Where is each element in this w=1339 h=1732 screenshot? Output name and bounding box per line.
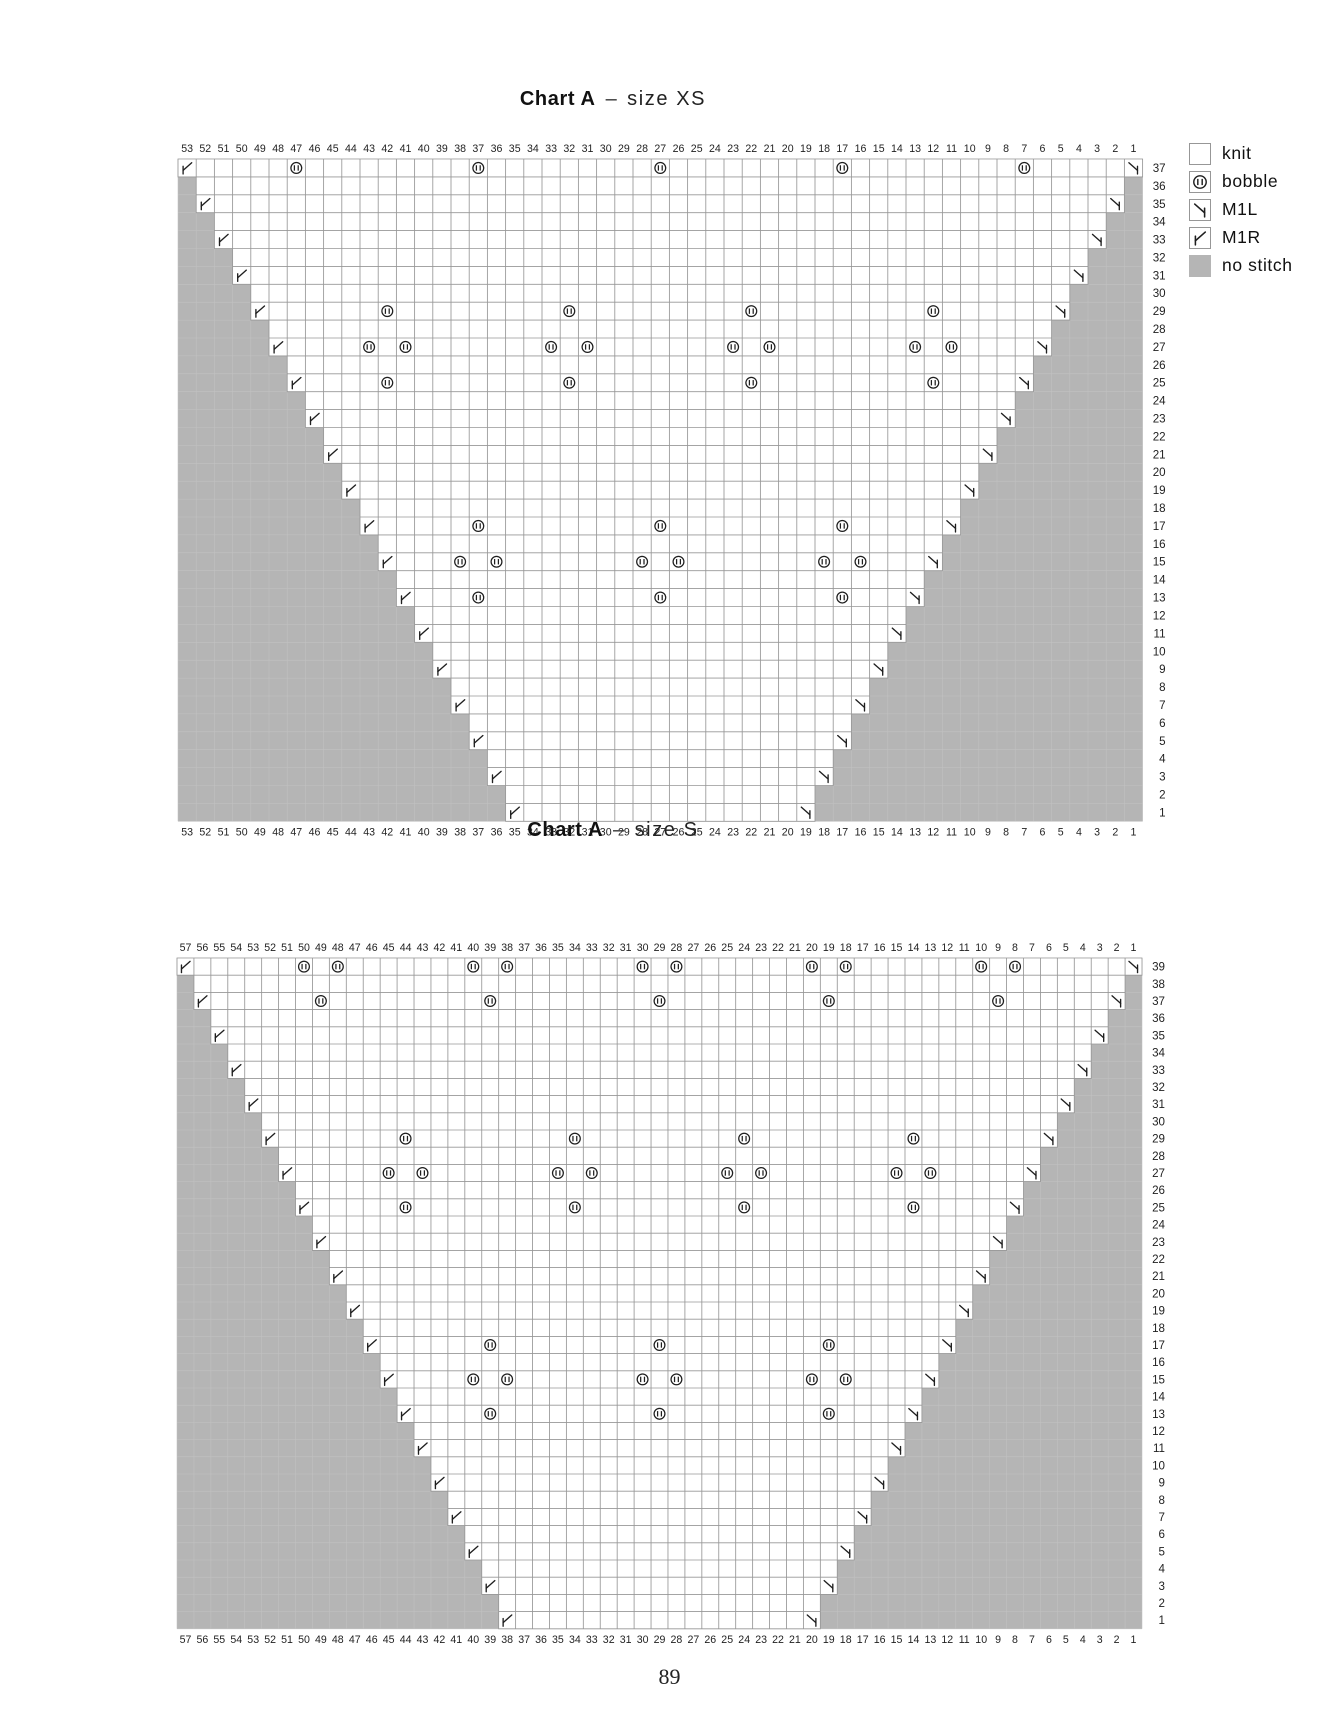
svg-text:1: 1	[1159, 806, 1165, 819]
svg-text:32: 32	[1152, 1081, 1165, 1094]
svg-text:5: 5	[1063, 1634, 1069, 1646]
svg-text:37: 37	[518, 1634, 530, 1646]
svg-text:11: 11	[959, 942, 970, 954]
svg-text:38: 38	[501, 1634, 513, 1646]
svg-text:33: 33	[545, 143, 557, 155]
svg-text:26: 26	[673, 143, 685, 155]
legend-item-m1r: M1R	[1188, 226, 1293, 249]
svg-text:31: 31	[620, 1634, 632, 1646]
svg-text:50: 50	[236, 143, 248, 155]
svg-text:48: 48	[272, 143, 284, 155]
svg-text:51: 51	[281, 942, 293, 954]
svg-text:15: 15	[891, 1634, 903, 1646]
svg-text:31: 31	[620, 942, 632, 954]
svg-text:52: 52	[264, 942, 276, 954]
svg-text:37: 37	[1152, 995, 1165, 1008]
svg-text:4: 4	[1080, 1634, 1086, 1646]
no-stitch-icon	[1188, 254, 1212, 278]
svg-text:49: 49	[315, 942, 327, 954]
svg-text:24: 24	[1153, 395, 1166, 408]
svg-text:14: 14	[891, 143, 903, 155]
svg-text:28: 28	[671, 1634, 683, 1646]
svg-text:43: 43	[363, 143, 375, 155]
svg-text:31: 31	[1153, 269, 1166, 282]
svg-text:17: 17	[1153, 520, 1166, 533]
svg-text:8: 8	[1012, 942, 1018, 954]
svg-text:23: 23	[755, 942, 767, 954]
svg-text:20: 20	[1152, 1287, 1165, 1300]
svg-text:26: 26	[1152, 1184, 1165, 1197]
svg-text:10: 10	[1153, 645, 1166, 658]
svg-text:53: 53	[247, 1634, 259, 1646]
chart-title-name: Chart A	[527, 819, 603, 841]
svg-text:18: 18	[818, 143, 830, 155]
svg-text:20: 20	[806, 1634, 818, 1646]
svg-text:1: 1	[1159, 1614, 1165, 1627]
svg-text:8: 8	[1012, 1634, 1018, 1646]
svg-text:34: 34	[1153, 216, 1166, 229]
svg-text:28: 28	[1152, 1150, 1165, 1163]
svg-text:52: 52	[264, 1634, 276, 1646]
svg-text:40: 40	[418, 143, 430, 155]
svg-text:11: 11	[1153, 1442, 1165, 1455]
svg-text:40: 40	[467, 942, 479, 954]
svg-text:41: 41	[450, 1634, 462, 1646]
svg-text:3: 3	[1094, 826, 1100, 838]
svg-text:29: 29	[654, 942, 666, 954]
svg-text:14: 14	[1152, 1391, 1165, 1404]
m1r-icon	[1188, 226, 1212, 250]
svg-text:14: 14	[908, 942, 920, 954]
svg-text:33: 33	[586, 1634, 598, 1646]
svg-text:29: 29	[654, 1634, 666, 1646]
svg-text:39: 39	[484, 942, 496, 954]
svg-text:42: 42	[434, 942, 446, 954]
svg-text:25: 25	[1153, 377, 1166, 390]
svg-text:33: 33	[586, 942, 598, 954]
svg-text:4: 4	[1076, 826, 1082, 838]
svg-text:32: 32	[1153, 252, 1166, 265]
svg-text:53: 53	[247, 942, 259, 954]
svg-text:9: 9	[995, 1634, 1001, 1646]
svg-text:19: 19	[823, 1634, 835, 1646]
svg-text:10: 10	[975, 942, 987, 954]
svg-text:29: 29	[1152, 1133, 1165, 1146]
svg-text:48: 48	[332, 942, 344, 954]
svg-text:31: 31	[582, 143, 594, 155]
svg-text:19: 19	[1153, 484, 1166, 497]
svg-text:18: 18	[840, 1634, 852, 1646]
m1l-icon	[1188, 198, 1212, 222]
svg-text:36: 36	[1152, 1012, 1165, 1025]
svg-text:22: 22	[745, 143, 757, 155]
svg-text:30: 30	[1152, 1115, 1165, 1128]
legend-item-knit: knit	[1188, 142, 1293, 165]
svg-text:9: 9	[1159, 1477, 1165, 1490]
svg-text:21: 21	[1153, 448, 1166, 461]
svg-text:45: 45	[327, 143, 339, 155]
svg-text:34: 34	[569, 1634, 581, 1646]
svg-text:48: 48	[332, 1634, 344, 1646]
svg-text:2: 2	[1114, 942, 1120, 954]
svg-text:57: 57	[180, 942, 192, 954]
svg-text:28: 28	[636, 143, 648, 155]
svg-text:7: 7	[1159, 699, 1165, 712]
svg-text:12: 12	[1152, 1425, 1165, 1438]
svg-text:15: 15	[1152, 1373, 1165, 1386]
svg-text:39: 39	[484, 1634, 496, 1646]
chart-xs-title: Chart A–size XS	[163, 88, 1063, 111]
chart-title-dash: –	[613, 819, 625, 841]
svg-text:10: 10	[975, 1634, 987, 1646]
svg-text:12: 12	[941, 942, 953, 954]
legend-label: knit	[1222, 143, 1252, 164]
svg-text:30: 30	[637, 942, 649, 954]
svg-text:7: 7	[1029, 942, 1035, 954]
chart-title-name: Chart A	[520, 88, 596, 110]
legend: knit bobble M1L M1R no stitch	[1188, 142, 1293, 277]
svg-text:38: 38	[1152, 978, 1165, 991]
svg-text:23: 23	[1153, 413, 1166, 426]
svg-text:45: 45	[383, 942, 395, 954]
svg-text:16: 16	[1152, 1356, 1165, 1369]
svg-text:14: 14	[908, 1634, 920, 1646]
svg-text:5: 5	[1159, 735, 1165, 748]
svg-text:39: 39	[436, 143, 448, 155]
svg-text:2: 2	[1112, 826, 1118, 838]
svg-text:18: 18	[1152, 1322, 1165, 1335]
svg-text:17: 17	[857, 942, 869, 954]
svg-text:27: 27	[1153, 341, 1166, 354]
svg-text:32: 32	[603, 942, 615, 954]
svg-text:13: 13	[925, 942, 937, 954]
svg-text:27: 27	[1152, 1167, 1165, 1180]
svg-text:21: 21	[1152, 1270, 1165, 1283]
svg-text:19: 19	[823, 942, 835, 954]
pattern-page: Chart A–size XS 112233445566778899101011…	[0, 0, 1339, 1732]
svg-text:39: 39	[1152, 961, 1165, 974]
svg-text:46: 46	[366, 1634, 378, 1646]
svg-text:15: 15	[873, 143, 885, 155]
svg-text:12: 12	[1153, 609, 1166, 622]
svg-text:8: 8	[1159, 681, 1165, 694]
svg-text:44: 44	[400, 942, 412, 954]
svg-text:23: 23	[1152, 1236, 1165, 1249]
svg-text:11: 11	[1154, 627, 1166, 640]
svg-text:3: 3	[1159, 1580, 1165, 1593]
svg-text:4: 4	[1159, 1563, 1166, 1576]
svg-text:5: 5	[1159, 1545, 1165, 1558]
svg-text:21: 21	[789, 942, 801, 954]
svg-text:3: 3	[1097, 942, 1103, 954]
svg-text:1: 1	[1131, 143, 1137, 155]
svg-text:11: 11	[946, 143, 957, 155]
svg-text:9: 9	[1159, 663, 1165, 676]
svg-text:55: 55	[213, 1634, 225, 1646]
svg-text:22: 22	[772, 1634, 784, 1646]
svg-text:44: 44	[345, 143, 357, 155]
legend-item-no-stitch: no stitch	[1188, 254, 1293, 277]
svg-text:11: 11	[959, 1634, 970, 1646]
svg-text:33: 33	[1153, 234, 1166, 247]
svg-text:21: 21	[764, 143, 776, 155]
svg-text:2: 2	[1114, 1634, 1120, 1646]
svg-text:26: 26	[1153, 359, 1166, 372]
svg-text:50: 50	[298, 942, 310, 954]
svg-text:51: 51	[218, 143, 230, 155]
svg-text:2: 2	[1112, 143, 1118, 155]
svg-text:25: 25	[1152, 1201, 1165, 1214]
svg-text:44: 44	[400, 1634, 412, 1646]
svg-text:40: 40	[467, 1634, 479, 1646]
chart-s-title: Chart A–size S	[163, 819, 1063, 842]
svg-text:15: 15	[891, 942, 903, 954]
svg-text:16: 16	[874, 942, 886, 954]
svg-text:49: 49	[315, 1634, 327, 1646]
svg-text:23: 23	[755, 1634, 767, 1646]
svg-text:35: 35	[552, 942, 564, 954]
svg-text:13: 13	[925, 1634, 937, 1646]
svg-text:35: 35	[509, 143, 521, 155]
svg-text:28: 28	[1153, 323, 1166, 336]
svg-text:20: 20	[1153, 466, 1166, 479]
svg-text:6: 6	[1040, 143, 1046, 155]
svg-text:15: 15	[1153, 556, 1166, 569]
svg-text:55: 55	[213, 942, 225, 954]
svg-text:52: 52	[199, 143, 211, 155]
svg-text:24: 24	[1152, 1219, 1165, 1232]
svg-text:16: 16	[1153, 538, 1166, 551]
svg-text:2: 2	[1159, 1597, 1165, 1610]
svg-text:17: 17	[836, 143, 848, 155]
svg-text:3: 3	[1097, 1634, 1103, 1646]
svg-text:36: 36	[1153, 180, 1166, 193]
svg-text:7: 7	[1021, 143, 1027, 155]
svg-text:27: 27	[688, 942, 700, 954]
svg-text:4: 4	[1080, 942, 1086, 954]
svg-text:7: 7	[1029, 1634, 1035, 1646]
chart-s-grid: 1122334455667788991010111112121313141415…	[163, 934, 1203, 1658]
svg-text:43: 43	[417, 1634, 429, 1646]
svg-text:53: 53	[181, 143, 193, 155]
svg-text:4: 4	[1076, 143, 1082, 155]
svg-text:29: 29	[618, 143, 630, 155]
bobble-icon	[1188, 170, 1212, 194]
svg-text:23: 23	[727, 143, 739, 155]
svg-text:30: 30	[600, 143, 612, 155]
svg-text:1: 1	[1131, 942, 1137, 954]
svg-text:49: 49	[254, 143, 266, 155]
knit-icon	[1188, 142, 1212, 166]
chart-title-size: size S	[635, 819, 699, 841]
svg-text:21: 21	[789, 1634, 801, 1646]
svg-text:38: 38	[501, 942, 513, 954]
svg-text:9: 9	[985, 143, 991, 155]
svg-text:22: 22	[1152, 1253, 1165, 1266]
svg-text:25: 25	[721, 942, 733, 954]
legend-label: no stitch	[1222, 255, 1293, 276]
svg-text:47: 47	[349, 942, 361, 954]
svg-text:20: 20	[806, 942, 818, 954]
svg-text:22: 22	[1153, 430, 1166, 443]
svg-text:19: 19	[800, 143, 812, 155]
svg-text:29: 29	[1153, 305, 1166, 318]
svg-text:46: 46	[366, 942, 378, 954]
svg-text:33: 33	[1152, 1064, 1165, 1077]
svg-text:30: 30	[1153, 287, 1166, 300]
svg-text:57: 57	[180, 1634, 192, 1646]
svg-text:9: 9	[995, 942, 1001, 954]
svg-text:4: 4	[1159, 753, 1166, 766]
svg-text:35: 35	[1153, 198, 1166, 211]
svg-text:13: 13	[1153, 592, 1166, 605]
chart-title-dash: –	[606, 88, 618, 110]
svg-text:35: 35	[1152, 1029, 1165, 1042]
svg-text:17: 17	[1152, 1339, 1165, 1352]
svg-text:54: 54	[230, 1634, 242, 1646]
svg-text:28: 28	[671, 942, 683, 954]
svg-text:42: 42	[434, 1634, 446, 1646]
svg-text:20: 20	[782, 143, 794, 155]
svg-text:27: 27	[688, 1634, 700, 1646]
svg-text:26: 26	[704, 942, 716, 954]
svg-text:41: 41	[400, 143, 412, 155]
svg-text:42: 42	[381, 143, 393, 155]
svg-text:35: 35	[552, 1634, 564, 1646]
svg-text:24: 24	[738, 942, 750, 954]
svg-text:24: 24	[709, 143, 721, 155]
svg-text:13: 13	[909, 143, 921, 155]
svg-text:3: 3	[1159, 771, 1165, 784]
svg-text:32: 32	[603, 1634, 615, 1646]
svg-text:7: 7	[1159, 1511, 1165, 1524]
svg-text:25: 25	[691, 143, 703, 155]
svg-text:54: 54	[230, 942, 242, 954]
legend-label: M1R	[1222, 227, 1261, 248]
svg-text:1: 1	[1131, 826, 1137, 838]
svg-text:27: 27	[654, 143, 666, 155]
svg-text:5: 5	[1063, 942, 1069, 954]
svg-text:36: 36	[491, 143, 503, 155]
svg-text:14: 14	[1153, 574, 1166, 587]
svg-text:5: 5	[1058, 143, 1064, 155]
svg-text:37: 37	[518, 942, 530, 954]
svg-text:37: 37	[472, 143, 484, 155]
chart-title-size: size XS	[627, 88, 706, 110]
svg-text:13: 13	[1152, 1408, 1165, 1421]
svg-text:38: 38	[454, 143, 466, 155]
svg-text:47: 47	[290, 143, 302, 155]
legend-label: M1L	[1222, 199, 1258, 220]
svg-text:41: 41	[450, 942, 462, 954]
svg-text:8: 8	[1003, 143, 1009, 155]
svg-text:37: 37	[1153, 162, 1166, 175]
svg-text:2: 2	[1159, 789, 1165, 802]
svg-text:19: 19	[1152, 1305, 1165, 1318]
chart-xs-grid: 1122334455667788991010111112121313141415…	[163, 135, 1203, 849]
svg-text:10: 10	[964, 143, 976, 155]
svg-text:43: 43	[417, 942, 429, 954]
svg-text:17: 17	[857, 1634, 869, 1646]
svg-text:16: 16	[874, 1634, 886, 1646]
svg-text:6: 6	[1046, 1634, 1052, 1646]
svg-text:10: 10	[1152, 1459, 1165, 1472]
svg-text:34: 34	[1152, 1047, 1165, 1060]
svg-text:8: 8	[1159, 1494, 1165, 1507]
legend-item-m1l: M1L	[1188, 198, 1293, 221]
svg-text:3: 3	[1094, 143, 1100, 155]
svg-text:25: 25	[721, 1634, 733, 1646]
svg-text:12: 12	[927, 143, 939, 155]
svg-text:56: 56	[197, 942, 209, 954]
svg-text:6: 6	[1159, 1528, 1165, 1541]
svg-text:47: 47	[349, 1634, 361, 1646]
svg-text:6: 6	[1159, 717, 1165, 730]
svg-text:50: 50	[298, 1634, 310, 1646]
svg-text:26: 26	[704, 1634, 716, 1646]
svg-text:45: 45	[383, 1634, 395, 1646]
svg-text:16: 16	[855, 143, 867, 155]
svg-text:34: 34	[569, 942, 581, 954]
svg-text:32: 32	[563, 143, 575, 155]
svg-text:18: 18	[840, 942, 852, 954]
svg-text:36: 36	[535, 1634, 547, 1646]
svg-text:12: 12	[941, 1634, 953, 1646]
svg-text:30: 30	[637, 1634, 649, 1646]
svg-text:22: 22	[772, 942, 784, 954]
svg-text:34: 34	[527, 143, 539, 155]
svg-text:6: 6	[1046, 942, 1052, 954]
page-number: 89	[0, 1664, 1339, 1690]
svg-text:56: 56	[197, 1634, 209, 1646]
legend-item-bobble: bobble	[1188, 170, 1293, 193]
legend-label: bobble	[1222, 171, 1278, 192]
svg-text:46: 46	[309, 143, 321, 155]
svg-text:51: 51	[281, 1634, 293, 1646]
svg-text:1: 1	[1131, 1634, 1137, 1646]
svg-text:36: 36	[535, 942, 547, 954]
svg-text:24: 24	[738, 1634, 750, 1646]
svg-text:31: 31	[1152, 1098, 1165, 1111]
svg-text:18: 18	[1153, 502, 1166, 515]
